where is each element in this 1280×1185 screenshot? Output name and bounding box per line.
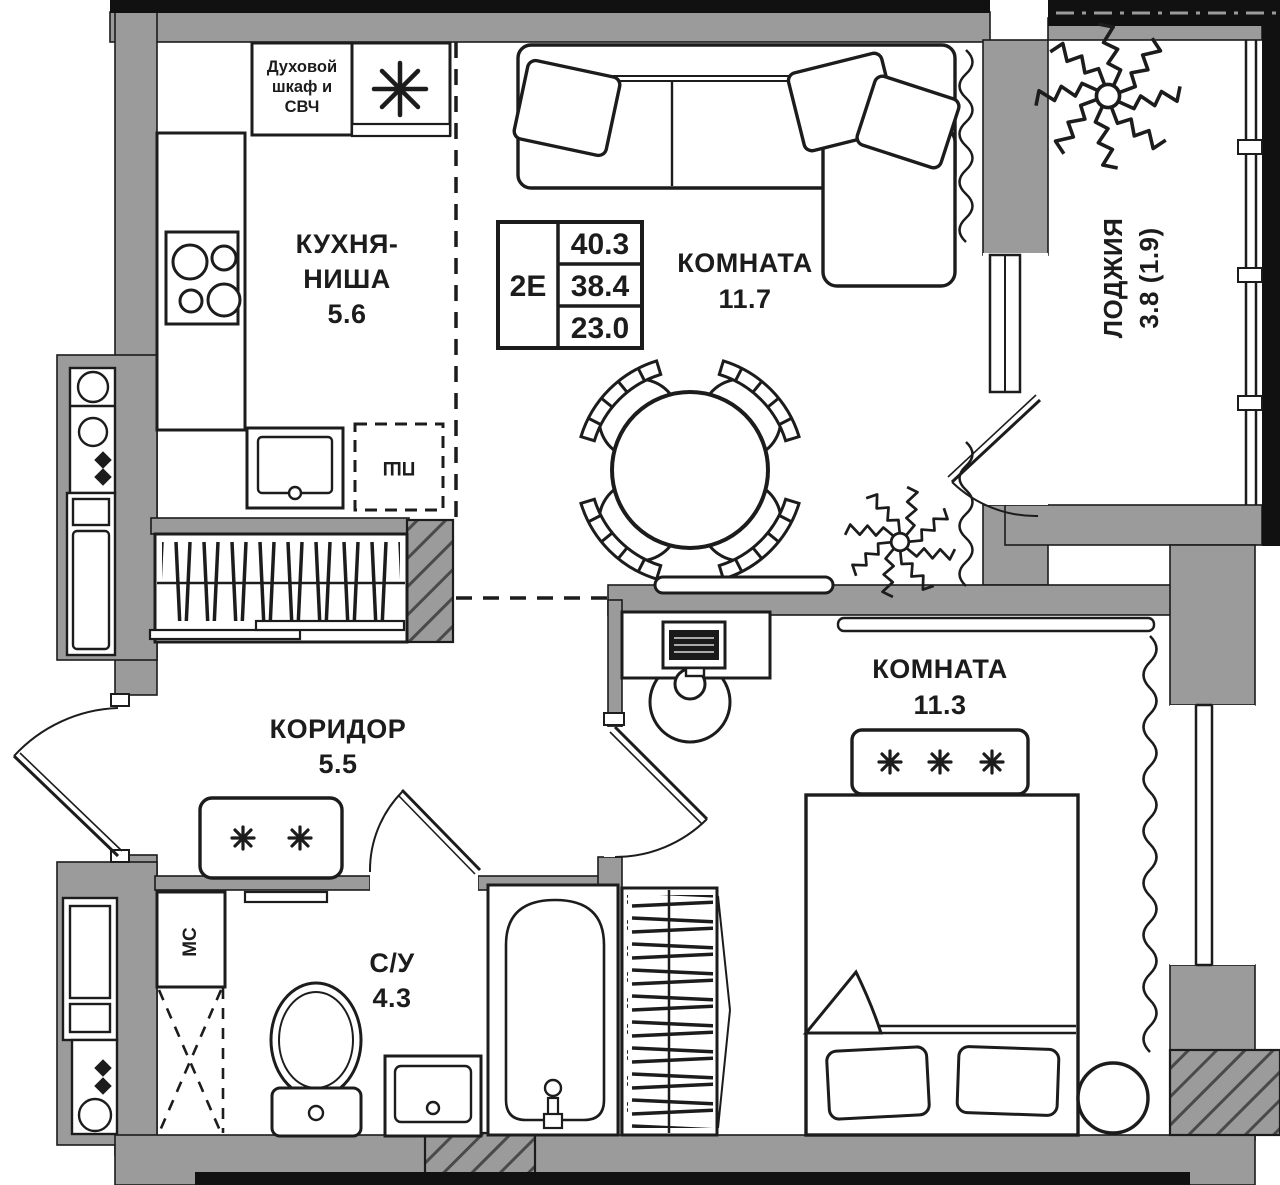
sink-drain-icon bbox=[289, 487, 301, 499]
asterisk-icon bbox=[232, 827, 254, 849]
living-area: 11.7 bbox=[718, 284, 771, 314]
kitchen-sink-bowl bbox=[258, 437, 332, 493]
flush-button-icon bbox=[309, 1106, 323, 1120]
burner-icon bbox=[173, 245, 207, 279]
monitor-stand bbox=[686, 668, 704, 676]
sofa-pillow bbox=[513, 59, 622, 157]
corridor-wardrobe bbox=[150, 534, 407, 642]
neighbor-fixtures bbox=[63, 368, 117, 1134]
tv-console bbox=[655, 577, 833, 593]
bedroom-furniture bbox=[622, 612, 1154, 1135]
oven-label-line3: СВЧ bbox=[285, 98, 320, 116]
sliding-door bbox=[150, 630, 300, 639]
floor-plan-canvas: 2Е 40.3 38.4 23.0 bbox=[0, 0, 1280, 1185]
living-label: КОМНАТА bbox=[677, 248, 812, 278]
bathroom-label: С/У bbox=[369, 948, 415, 978]
asterisk-icon bbox=[929, 751, 951, 773]
washer-label: МС bbox=[180, 927, 201, 957]
tub-drain-icon bbox=[545, 1080, 561, 1096]
unit-total-area: 40.3 bbox=[571, 228, 629, 261]
bedroom-window bbox=[1170, 705, 1255, 965]
asterisk-icon bbox=[879, 751, 901, 773]
bed-pillow bbox=[957, 1046, 1059, 1115]
asterisk-icon bbox=[289, 827, 311, 849]
dishwasher-label: ПШ bbox=[383, 457, 416, 478]
bathroom-door bbox=[370, 790, 480, 892]
plant-icon bbox=[1030, 18, 1186, 174]
wall-shelf bbox=[838, 618, 1154, 631]
loggia-window-door bbox=[948, 253, 1048, 516]
burner-icon bbox=[180, 290, 202, 312]
sink-drain-icon bbox=[427, 1102, 439, 1114]
sliding-door bbox=[256, 621, 404, 630]
corridor-label: КОРИДОР bbox=[270, 714, 407, 744]
unit-info-card: 2Е 40.3 38.4 23.0 bbox=[498, 222, 642, 348]
loggia-area: 3.8 (1.9) bbox=[1134, 227, 1164, 328]
unit-area-2: 38.4 bbox=[571, 270, 630, 303]
unit-type: 2Е bbox=[510, 270, 547, 303]
floor-plan: 2Е 40.3 38.4 23.0 bbox=[0, 0, 1280, 1185]
asterisk-icon bbox=[981, 751, 1003, 773]
dining-table bbox=[612, 392, 768, 548]
stove-asterisk-icon bbox=[374, 63, 426, 115]
bedroom-area: 11.3 bbox=[913, 690, 966, 720]
loggia-glazing bbox=[1238, 40, 1262, 505]
oven-label-line2: шкаф и bbox=[272, 78, 332, 96]
towel-bar bbox=[245, 892, 327, 902]
corridor-area: 5.5 bbox=[318, 749, 357, 779]
bedside-table bbox=[1078, 1063, 1148, 1133]
burner-icon bbox=[208, 284, 240, 316]
entrance-door bbox=[14, 694, 159, 862]
bathroom-area: 4.3 bbox=[372, 983, 411, 1013]
bed-pillow bbox=[826, 1046, 929, 1119]
kitchen-area: 5.6 bbox=[327, 299, 366, 329]
kitchen-label: КУХНЯ- bbox=[296, 229, 399, 259]
loggia-label: ЛОДЖИЯ bbox=[1098, 218, 1128, 339]
burner-icon bbox=[212, 246, 236, 270]
bedroom-label: КОМНАТА bbox=[872, 654, 1007, 684]
svg-text:НИША: НИША bbox=[303, 264, 391, 294]
unit-living-area: 23.0 bbox=[571, 312, 629, 345]
dining-set bbox=[572, 352, 809, 589]
oven-label-line1: Духовой bbox=[267, 58, 337, 76]
appliance-place-dashed bbox=[159, 988, 223, 1133]
